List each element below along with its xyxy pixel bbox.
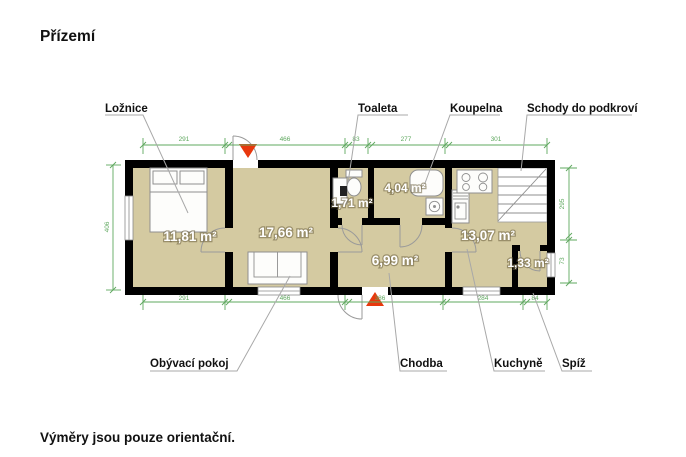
dim-bottom-3: 386 [375,295,386,302]
area-label-toaleta: 1,71 m² [331,196,372,210]
area-label-obyvaci-pokoj: 17,66 m² [259,225,314,240]
room-label-kuchyne: Kuchyně [494,358,543,370]
stove-icon [457,170,492,193]
page-title: Přízemí [40,28,96,45]
dimension-chain-left: 406 [104,162,121,293]
stairs-icon [498,168,547,222]
disclaimer-note: Výměry jsou pouze orientační. [40,430,235,445]
window-livingroom-bottom [258,287,300,295]
area-label-loznice: 11,81 m² [163,229,217,244]
room-label-obyvaci-pokoj: Obývací pokoj [150,358,229,370]
dim-bottom-4: 284 [478,295,489,302]
area-label-koupelna: 4,04 m² [384,181,425,195]
dim-top-2: 466 [280,136,291,143]
window-kitchen-bottom [463,287,500,295]
floorplan-page: Přízemí Výměry jsou pouze orientační. [0,0,686,457]
dimension-chain-bottom: 291 466 386 284 84 [140,295,550,310]
room-label-spiz: Spíž [562,358,586,370]
entry-arrow-top-icon [239,144,257,158]
window-bedroom-left [125,196,133,240]
dim-top-3: 83 [352,136,360,143]
room-label-toaleta: Toaleta [358,103,398,115]
area-label-chodba: 6,99 m² [372,253,419,268]
dim-right-1: 295 [559,198,566,209]
dimension-chain-right: 295 73 [559,165,577,286]
dim-bottom-2: 466 [280,295,291,302]
door-entry-main [338,295,362,319]
room-label-koupelna: Koupelna [450,103,503,115]
dim-bottom-1: 291 [179,295,190,302]
room-label-loznice: Ložnice [105,103,148,115]
room-label-schody: Schody do podkroví [527,103,638,115]
dimension-chain-top: 291 466 83 277 301 [140,136,550,154]
dim-right-2: 73 [559,257,566,265]
area-label-kuchyne: 13,07 m² [461,228,516,243]
room-label-chodba: Chodba [400,358,443,370]
floorplan-drawing: Přízemí Výměry jsou pouze orientační. [0,0,686,457]
dim-top-5: 301 [491,136,502,143]
washing-machine-icon [426,198,443,215]
dim-left-1: 406 [104,221,111,232]
sofa-icon [248,252,307,284]
dim-top-4: 277 [401,136,412,143]
kitchen-sink-icon [452,190,469,223]
dim-top-1: 291 [179,136,190,143]
bed-icon [150,168,207,232]
area-label-spiz: 1,33 m² [507,256,548,270]
